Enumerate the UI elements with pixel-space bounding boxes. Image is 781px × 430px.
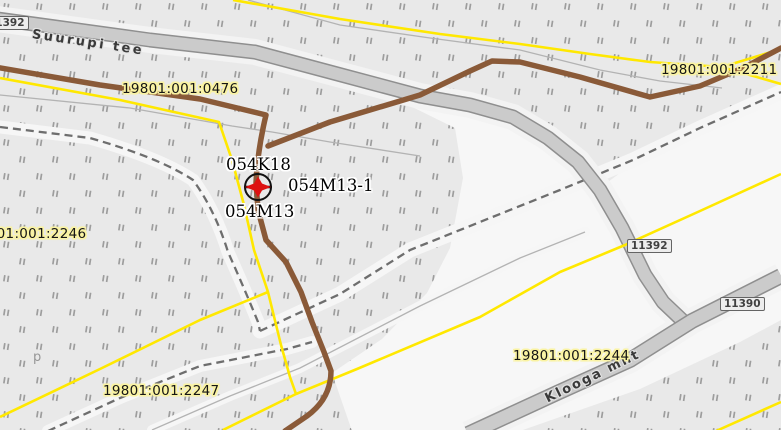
utility-label-054M13: 054M13 [225,202,294,221]
parcel-label-2244: 19801:001:2244 [513,348,629,364]
road-number-badge-11390: 11390 [720,297,765,311]
map-viewport[interactable]: Suurupi tee Klooga mnt 19801:001:0476 19… [0,0,781,430]
utility-node-marker-icon [244,174,272,200]
utility-label-054M13-1: 054M13-1 [288,176,373,195]
road-number-badge-11392: 11392 [627,239,672,253]
p-map-symbol: p [33,350,41,365]
road-number-badge-11392-clipped: 11392 [0,16,29,30]
parcel-label-0476: 19801:001:0476 [122,81,238,97]
parcel-label-2246: 19801:001:2246 [0,226,86,242]
utility-label-054K18: 054K18 [226,155,291,174]
parcel-label-2211: 19801:001:2211 [661,62,777,78]
parcel-label-2247: 19801:001:2247 [103,383,219,399]
